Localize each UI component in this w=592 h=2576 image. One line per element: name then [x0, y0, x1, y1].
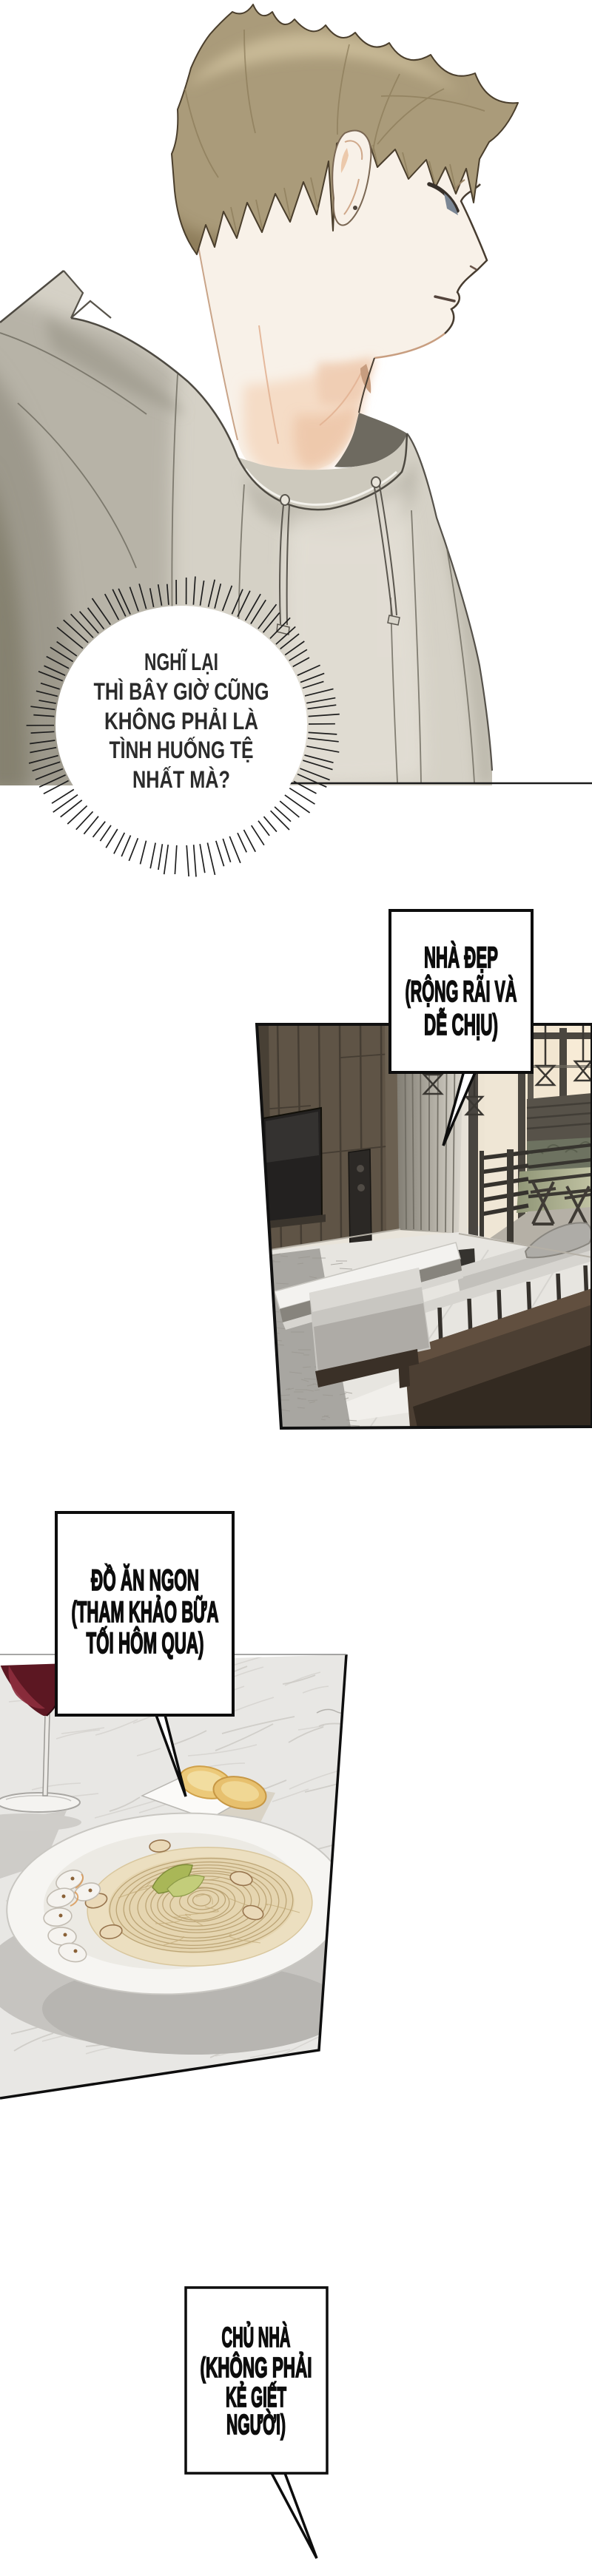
- svg-text:THÌ BÂY GIỜ CŨNG: THÌ BÂY GIỜ CŨNG: [94, 678, 269, 705]
- svg-text:KẺ GIẾT: KẺ GIẾT: [226, 2381, 286, 2413]
- svg-text:NHẤT MÀ?: NHẤT MÀ?: [132, 766, 230, 793]
- svg-text:CHỦ NHÀ: CHỦ NHÀ: [222, 2321, 291, 2353]
- svg-text:(RỘNG RÃI VÀ: (RỘNG RÃI VÀ: [406, 974, 517, 1008]
- svg-text:(KHÔNG PHẢI: (KHÔNG PHẢI: [201, 2350, 312, 2384]
- svg-text:NGƯỜI): NGƯỜI): [226, 2408, 286, 2441]
- svg-text:DỄ CHỊU): DỄ CHỊU): [424, 1007, 498, 1041]
- svg-text:TỐI HÔM QUA): TỐI HÔM QUA): [87, 1626, 204, 1660]
- svg-text:KHÔNG PHẢI LÀ: KHÔNG PHẢI LÀ: [104, 708, 258, 734]
- svg-text:NGHĨ LẠI: NGHĨ LẠI: [144, 649, 218, 675]
- svg-text:(THAM KHẢO BỮA: (THAM KHẢO BỮA: [72, 1595, 219, 1629]
- svg-text:TÌNH HUỐNG TỆ: TÌNH HUỐNG TỆ: [110, 737, 254, 763]
- svg-text:ĐỒ ĂN NGON: ĐỒ ĂN NGON: [91, 1563, 199, 1597]
- svg-text:NHÀ ĐẸP: NHÀ ĐẸP: [424, 941, 498, 974]
